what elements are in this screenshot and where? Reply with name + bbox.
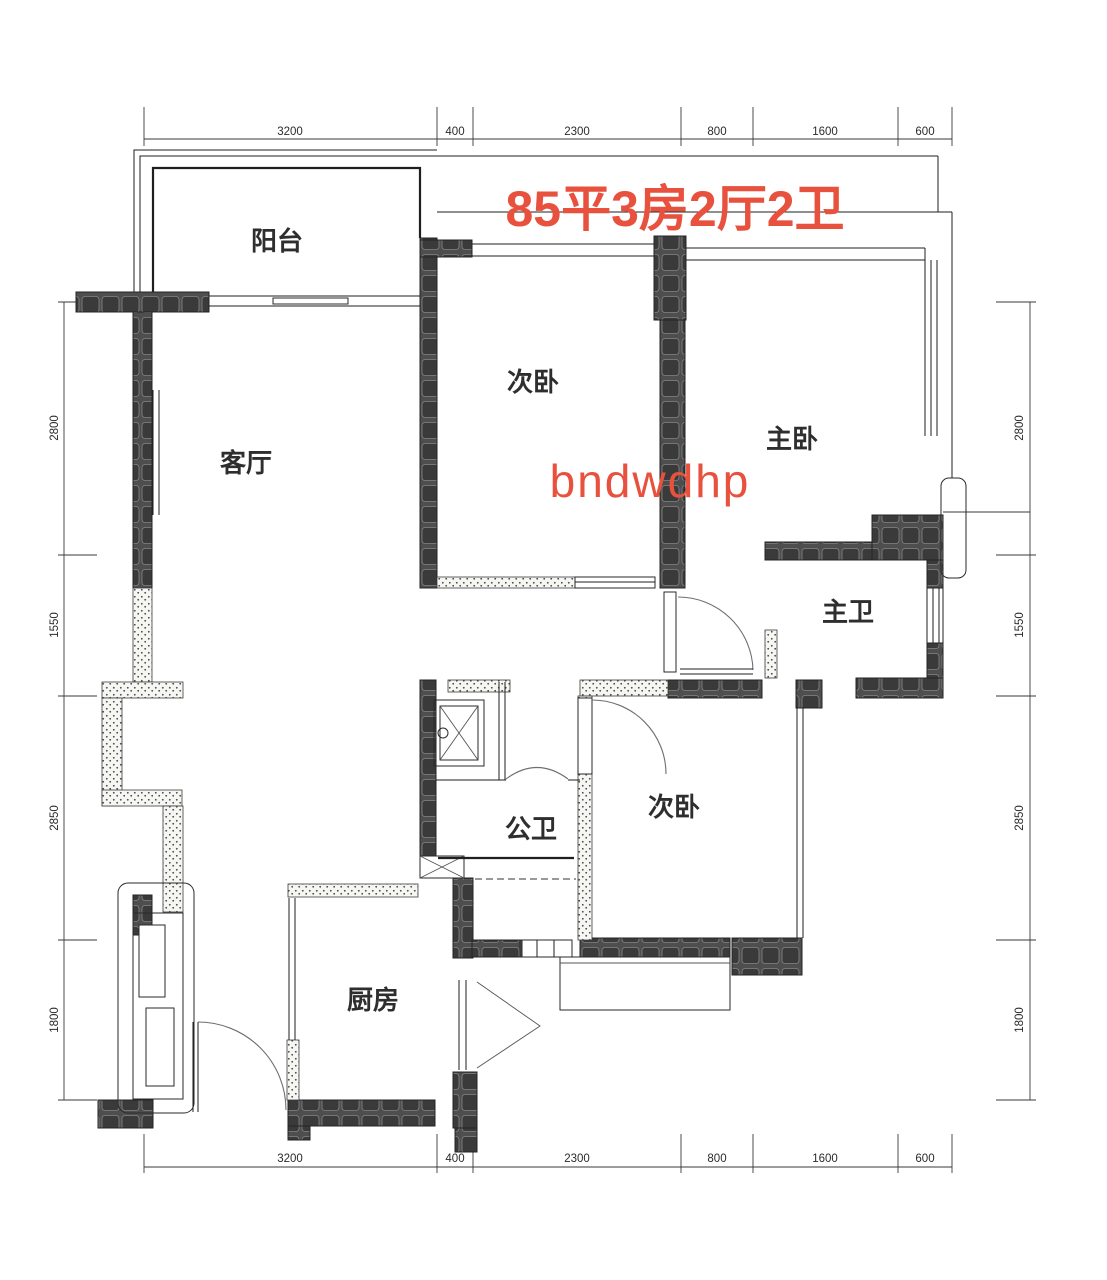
dim-right-0: 2800 xyxy=(1014,415,1026,441)
dim-bottom-1: 400 xyxy=(445,1153,464,1165)
dimension-chain-bottom: 3200 400 2300 800 1600 600 xyxy=(144,1134,952,1173)
windows xyxy=(153,244,943,1040)
room-label-balcony: 阳台 xyxy=(251,226,303,256)
dim-top-4: 1600 xyxy=(812,126,838,138)
dim-left-2: 2850 xyxy=(49,805,61,831)
room-label-kitchen: 厨房 xyxy=(347,985,399,1015)
fixtures xyxy=(118,478,966,1113)
bay-platform xyxy=(560,957,730,1010)
dim-right-2: 2850 xyxy=(1014,805,1026,831)
dim-left-3: 1800 xyxy=(49,1007,61,1033)
dim-top-2: 2300 xyxy=(564,126,590,138)
dim-left-1: 1550 xyxy=(49,612,61,638)
dim-bottom-2: 2300 xyxy=(564,1153,590,1165)
dim-top-0: 3200 xyxy=(277,126,303,138)
bedroom-low-door xyxy=(578,698,666,774)
dimension-chain-top: 3200 400 2300 800 1600 600 xyxy=(144,107,952,146)
dimension-chain-right: 2800 1550 2850 1800 xyxy=(943,302,1036,1100)
room-label-bedroom-low: 次卧 xyxy=(648,792,700,822)
dim-bottom-4: 1600 xyxy=(812,1153,838,1165)
room-label-public-bath: 公卫 xyxy=(505,814,557,844)
room-label-master: 主卧 xyxy=(766,424,818,454)
dim-bottom-3: 800 xyxy=(707,1153,726,1165)
ac-platform xyxy=(941,478,966,578)
public-bath-door xyxy=(436,768,580,781)
entry-cabinet xyxy=(133,913,183,1099)
dim-left-0: 2800 xyxy=(49,415,61,441)
watermark: bndwdhp xyxy=(550,455,751,507)
dim-right-1: 1550 xyxy=(1014,612,1026,638)
dim-top-3: 800 xyxy=(707,126,726,138)
plan-title: 85平3房2厅2卫 xyxy=(505,181,844,237)
dim-top-5: 600 xyxy=(915,126,934,138)
master-bedroom-door xyxy=(664,592,753,674)
entry-door xyxy=(193,1022,286,1112)
room-label-living: 客厅 xyxy=(220,448,272,478)
dim-bottom-0: 3200 xyxy=(277,1153,303,1165)
dim-right-3: 1800 xyxy=(1014,1007,1026,1033)
dim-bottom-5: 600 xyxy=(915,1153,934,1165)
dim-top-1: 400 xyxy=(445,126,464,138)
shower xyxy=(434,700,484,766)
floor-plan-page: 3200 400 2300 800 1600 600 3200 400 2300… xyxy=(0,0,1107,1280)
doors xyxy=(193,592,753,1112)
room-label-bedroom-top: 次卧 xyxy=(507,367,559,397)
floor-plan-drawing: 3200 400 2300 800 1600 600 3200 400 2300… xyxy=(0,0,1107,1280)
room-label-master-bath: 主卫 xyxy=(822,597,874,627)
kitchen-sliding-door xyxy=(459,940,572,1070)
dimension-chain-left: 2800 1550 2850 1800 xyxy=(49,302,97,1100)
